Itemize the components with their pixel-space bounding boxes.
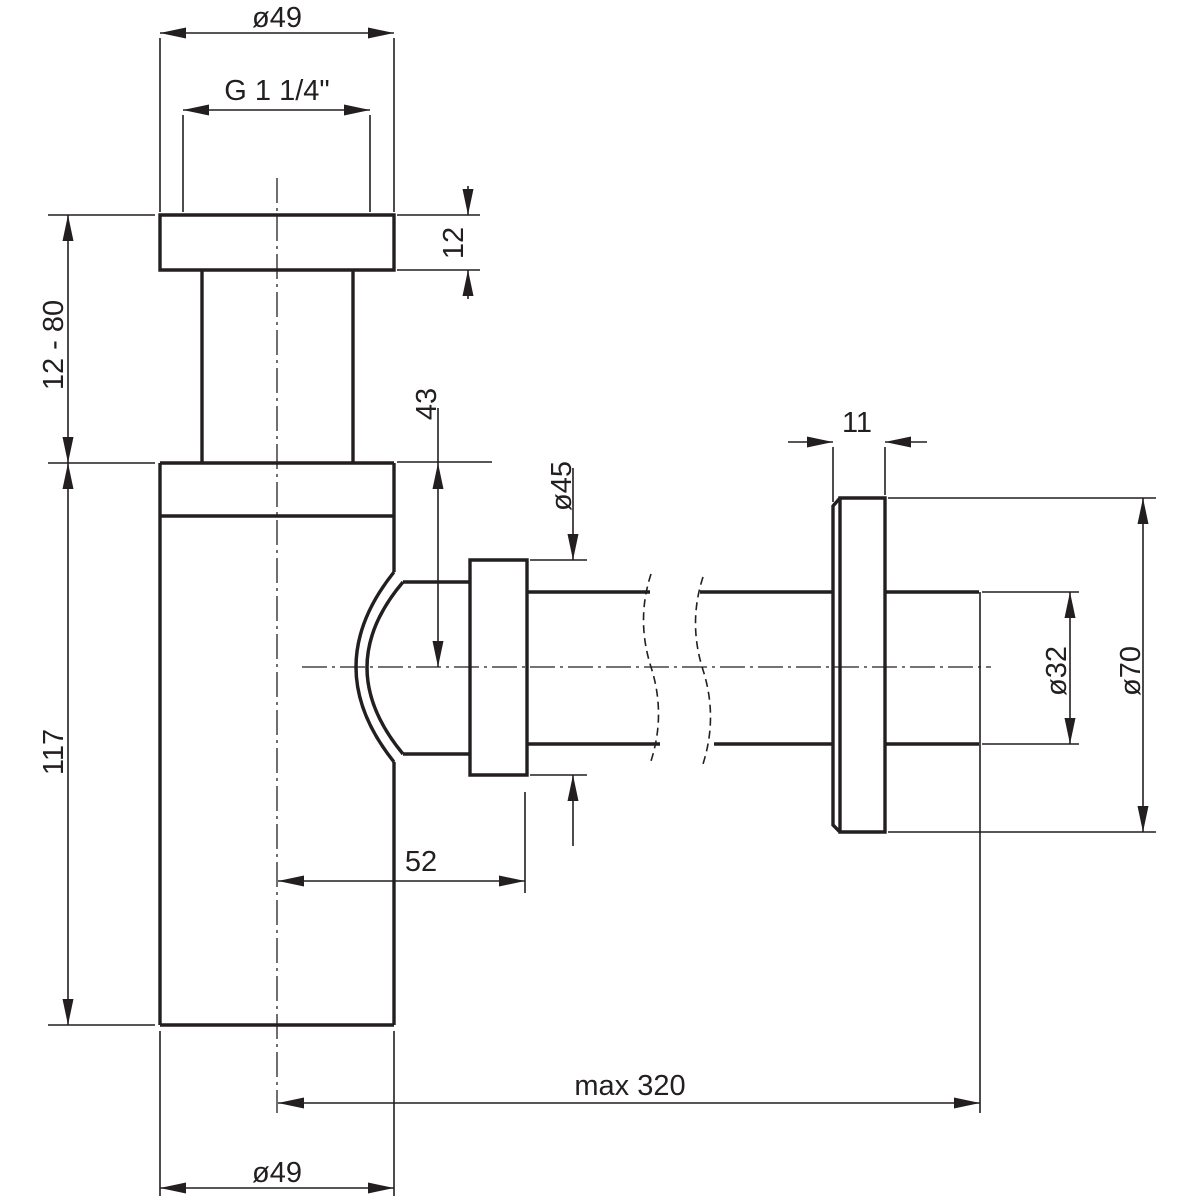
dim-label-thread-size: G 1 1/4" (224, 75, 329, 107)
dim-label-outlet-nut-diameter: ø45 (546, 461, 578, 511)
arrowhead (568, 534, 579, 560)
arrowhead (278, 876, 304, 887)
wall-rosette-outline (833, 498, 885, 832)
arrowhead (1138, 806, 1149, 832)
dim-label-body-height: 117 (38, 729, 70, 775)
dim-pipe-diameter: ø32 (980, 592, 1079, 1113)
dim-body-height: 117 (38, 463, 155, 1025)
arrowhead (63, 437, 74, 463)
arrowhead (63, 215, 74, 241)
arrowhead (1065, 718, 1076, 744)
dim-top-nut-height: 12 (397, 186, 480, 299)
arrowhead (183, 105, 209, 116)
arrowhead (1065, 592, 1076, 618)
arrowhead (160, 28, 186, 39)
dim-label-pipe-diameter: ø32 (1041, 646, 1073, 696)
break-line-right (696, 577, 711, 764)
dim-label-max-length: max 320 (574, 1070, 685, 1102)
arrowhead (1138, 498, 1149, 524)
dim-label-top-diameter: ø49 (252, 2, 302, 34)
arrowhead (344, 105, 370, 116)
arrowhead (499, 876, 525, 887)
arrowhead (885, 437, 911, 448)
dim-rosette-depth: 11 (788, 407, 927, 502)
dim-label-adjustment-range: 12 - 80 (38, 300, 70, 390)
arrowhead (433, 641, 444, 667)
pipe-segment-middle (700, 592, 833, 744)
pipe-break-lines (644, 574, 711, 764)
arrowhead (568, 775, 579, 801)
pipe-segment-right (885, 592, 979, 744)
technical-drawing-page: ø49 G 1 1/4" 12 12 - 80 117 43 (0, 0, 1200, 1200)
arrowhead (368, 28, 394, 39)
dim-label-rosette-depth: 11 (842, 407, 872, 439)
dim-label-top-nut-height: 12 (438, 227, 470, 259)
arrowhead (63, 999, 74, 1025)
dim-outlet-center-depth: 43 (397, 388, 492, 667)
trap-outline (160, 215, 979, 1025)
dim-label-body-diameter: ø49 (252, 1157, 302, 1189)
spout-stub-outline (403, 582, 470, 754)
arrowhead (160, 1183, 186, 1194)
dim-rosette-diameter: ø70 (888, 498, 1156, 832)
arrowhead (807, 437, 833, 448)
bottle-trap-drawing: ø49 G 1 1/4" 12 12 - 80 117 43 (0, 0, 1200, 1200)
arrowhead (954, 1098, 980, 1109)
dim-outlet-nut-diameter: ø45 (530, 461, 587, 846)
dim-outlet-offset: 52 (278, 792, 525, 893)
pipe-segment-left (527, 592, 660, 744)
arrowhead (463, 189, 474, 215)
arrowhead (368, 1183, 394, 1194)
dim-label-outlet-offset: 52 (405, 846, 437, 878)
dim-label-rosette-diameter: ø70 (1115, 646, 1147, 696)
dim-label-outlet-center-depth: 43 (411, 388, 443, 420)
dim-max-length: max 320 (278, 1070, 980, 1109)
dim-adjustment-range: 12 - 80 (38, 215, 155, 463)
arrowhead (463, 270, 474, 296)
arrowhead (63, 463, 74, 489)
arrowhead (433, 463, 444, 489)
arrowhead (278, 1098, 304, 1109)
